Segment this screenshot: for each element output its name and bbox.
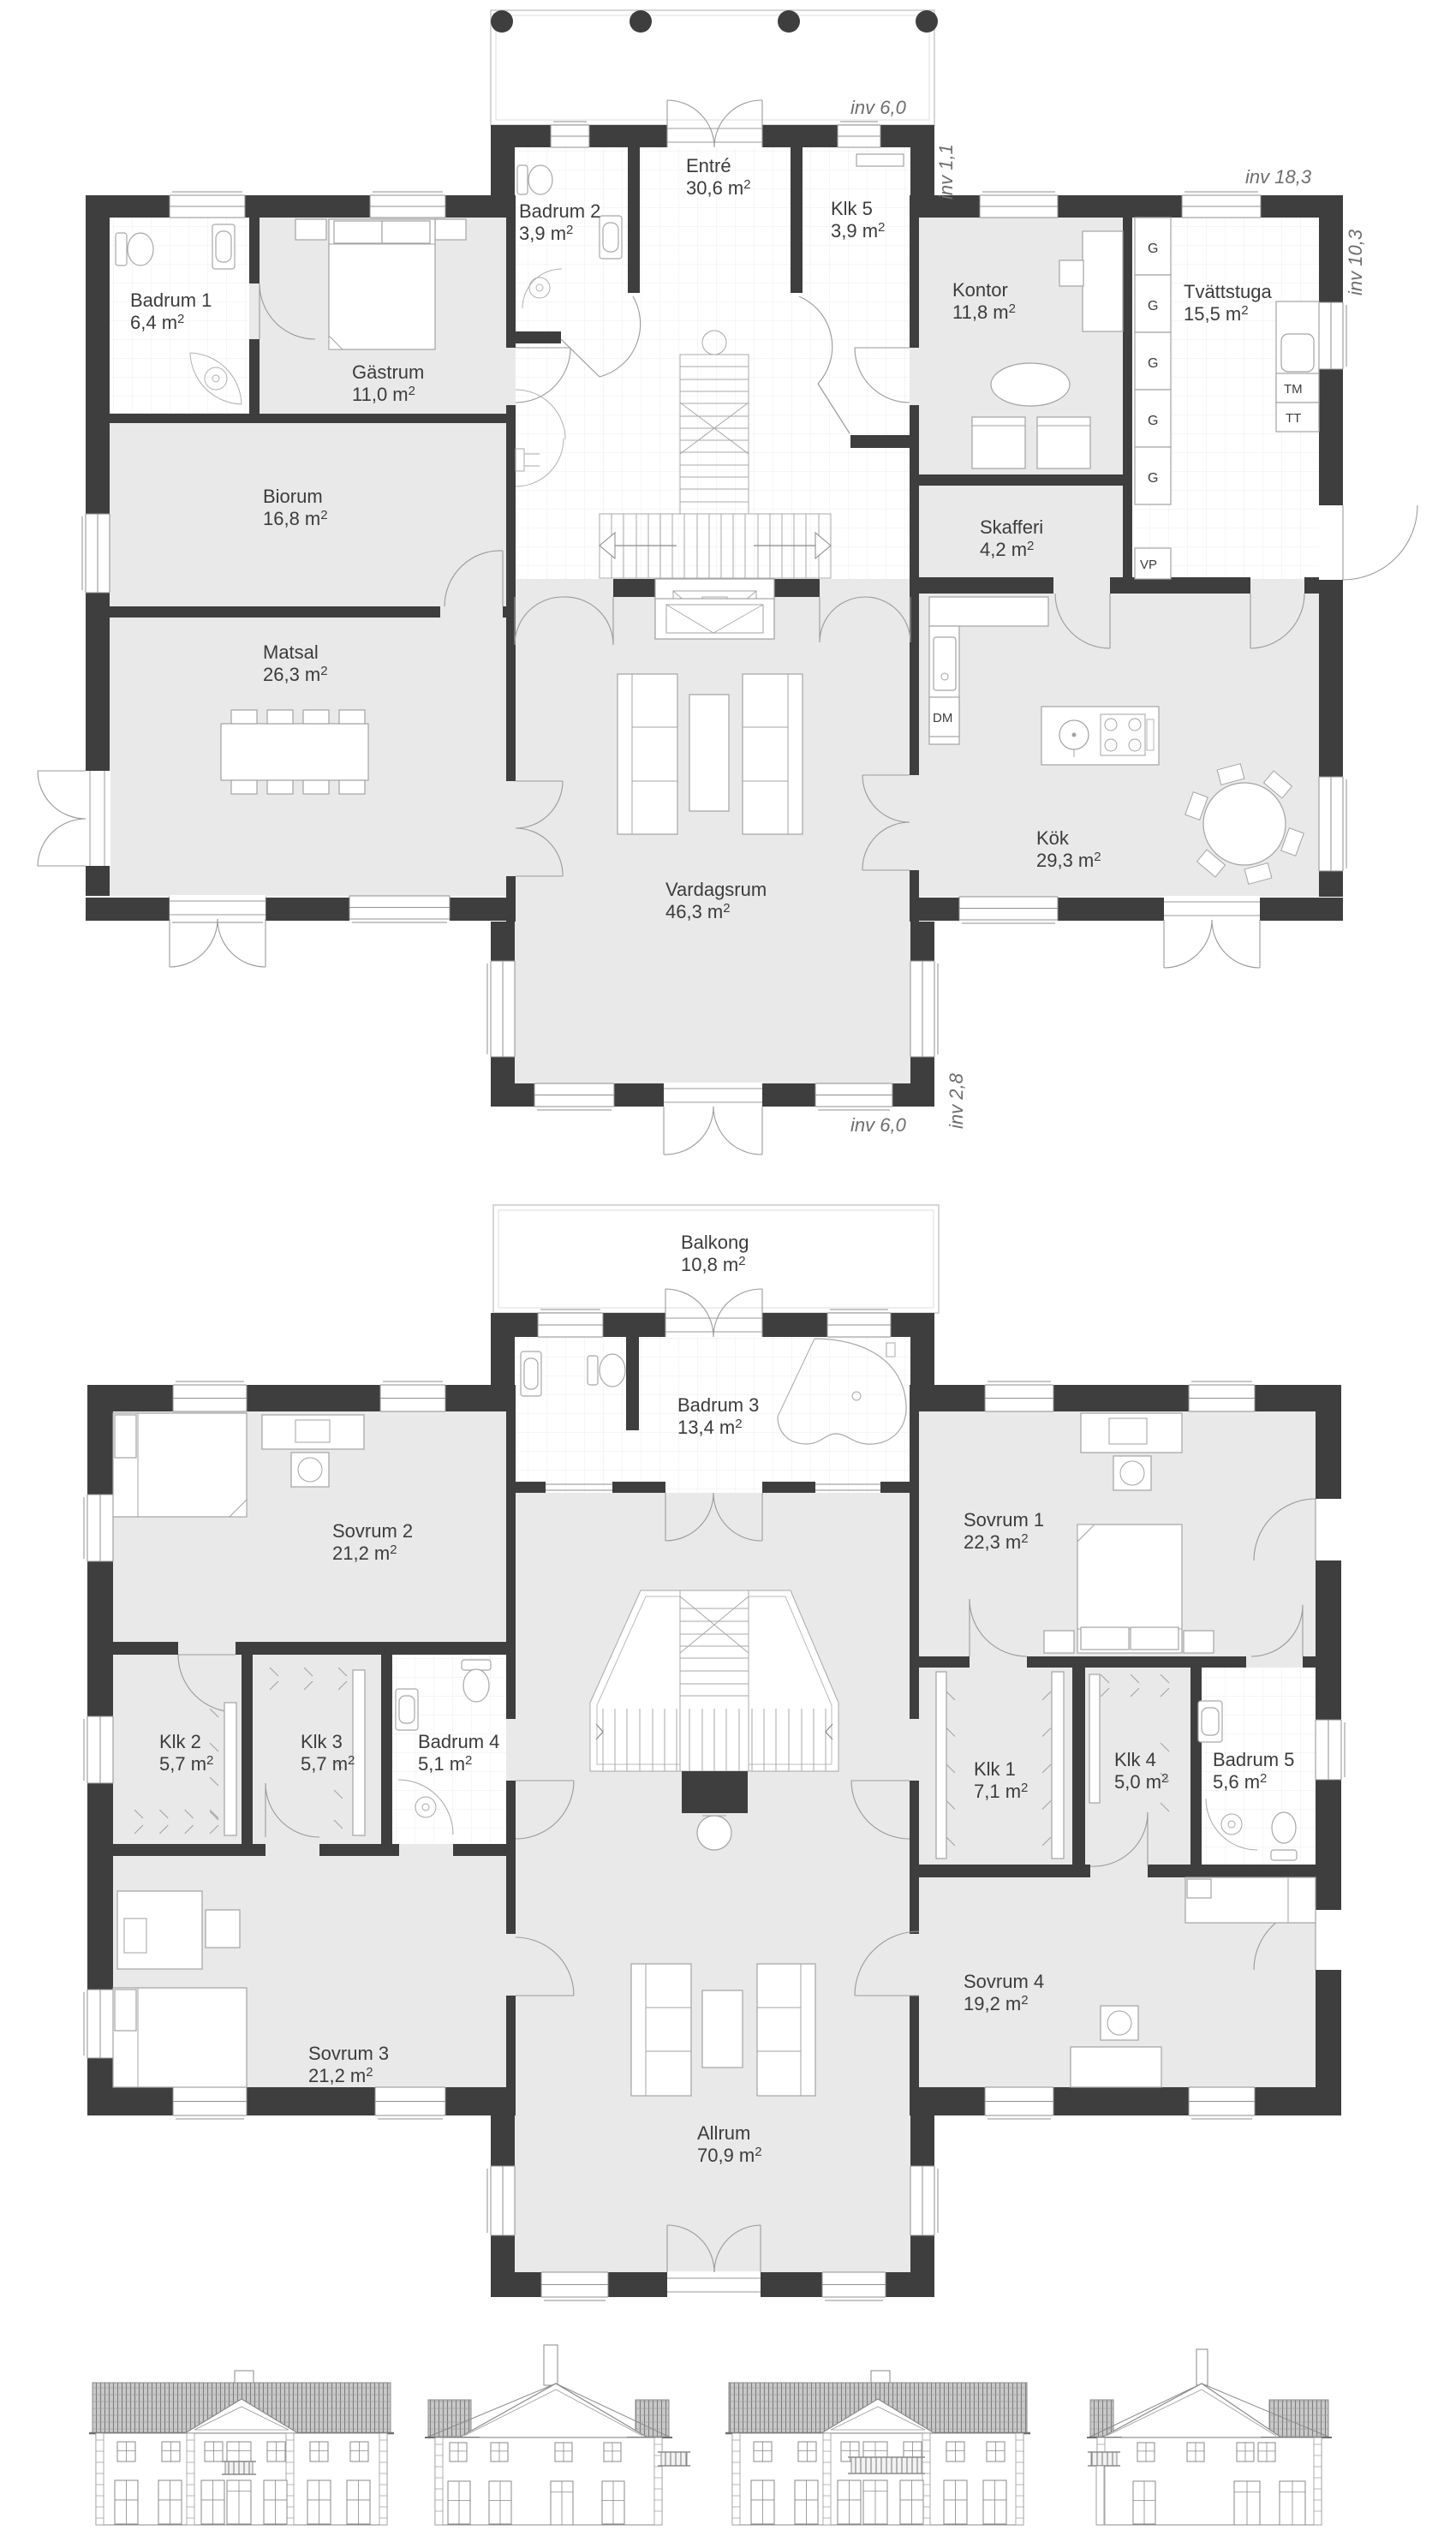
svg-text:Allrum: Allrum xyxy=(697,2122,750,2144)
svg-text:5,6 m2: 5,6 m2 xyxy=(1213,1771,1267,1793)
svg-text:G: G xyxy=(1148,356,1158,371)
svg-text:Balkong: Balkong xyxy=(681,1232,749,1253)
svg-text:21,2 m2: 21,2 m2 xyxy=(308,2065,373,2086)
svg-text:DM: DM xyxy=(933,711,952,725)
svg-text:Tvättstuga: Tvättstuga xyxy=(1184,281,1272,302)
svg-text:7,1 m2: 7,1 m2 xyxy=(974,1781,1028,1802)
svg-text:Skafferi: Skafferi xyxy=(980,516,1043,538)
svg-text:16,8 m2: 16,8 m2 xyxy=(263,508,328,529)
svg-text:5,7 m2: 5,7 m2 xyxy=(159,1753,213,1775)
svg-text:Badrum 3: Badrum 3 xyxy=(677,1394,759,1416)
svg-text:5,7 m2: 5,7 m2 xyxy=(301,1753,355,1775)
svg-text:11,8 m2: 11,8 m2 xyxy=(952,301,1016,323)
svg-text:21,2 m2: 21,2 m2 xyxy=(332,1542,397,1564)
svg-text:70,9 m2: 70,9 m2 xyxy=(697,2145,762,2166)
svg-text:4,2 m2: 4,2 m2 xyxy=(980,539,1034,560)
svg-text:G: G xyxy=(1148,242,1158,256)
svg-text:inv 6,0: inv 6,0 xyxy=(850,97,907,118)
svg-text:13,4 m2: 13,4 m2 xyxy=(677,1417,743,1438)
svg-text:Sovrum 3: Sovrum 3 xyxy=(308,2043,389,2064)
svg-text:Klk 4: Klk 4 xyxy=(1114,1749,1156,1770)
svg-text:5,0 m2: 5,0 m2 xyxy=(1114,1771,1168,1793)
svg-text:Klk 5: Klk 5 xyxy=(831,198,873,219)
svg-text:Badrum 1: Badrum 1 xyxy=(130,289,212,311)
svg-text:Klk 3: Klk 3 xyxy=(301,1731,343,1752)
svg-text:Badrum 4: Badrum 4 xyxy=(418,1731,499,1752)
svg-text:Badrum 2: Badrum 2 xyxy=(519,200,600,222)
svg-text:3,9 m2: 3,9 m2 xyxy=(831,220,885,242)
svg-text:Sovrum 1: Sovrum 1 xyxy=(964,1509,1044,1531)
svg-text:Klk 2: Klk 2 xyxy=(159,1731,201,1752)
svg-text:inv 6,0: inv 6,0 xyxy=(850,1114,907,1136)
svg-text:Kök: Kök xyxy=(1036,827,1070,849)
svg-text:Gästrum: Gästrum xyxy=(352,361,424,383)
svg-text:Matsal: Matsal xyxy=(263,641,319,663)
svg-text:26,3 m2: 26,3 m2 xyxy=(263,664,328,685)
svg-text:Kontor: Kontor xyxy=(952,279,1008,301)
svg-text:Biorum: Biorum xyxy=(263,486,323,507)
svg-text:TM: TM xyxy=(1284,382,1303,397)
svg-text:Sovrum 4: Sovrum 4 xyxy=(964,1971,1044,1992)
svg-text:G: G xyxy=(1148,471,1158,486)
svg-text:46,3 m2: 46,3 m2 xyxy=(665,901,731,922)
svg-text:19,2 m2: 19,2 m2 xyxy=(964,1993,1029,2014)
svg-text:15,5 m2: 15,5 m2 xyxy=(1184,303,1249,325)
svg-text:10,8 m2: 10,8 m2 xyxy=(681,1254,746,1275)
svg-text:Badrum 5: Badrum 5 xyxy=(1213,1749,1294,1770)
svg-text:VP: VP xyxy=(1140,558,1157,572)
svg-text:5,1 m2: 5,1 m2 xyxy=(418,1753,472,1775)
svg-text:Sovrum 2: Sovrum 2 xyxy=(332,1520,413,1542)
svg-text:11,0 m2: 11,0 m2 xyxy=(352,384,415,405)
svg-text:22,3 m2: 22,3 m2 xyxy=(964,1531,1029,1553)
svg-text:Entré: Entré xyxy=(686,155,731,176)
svg-text:6,4 m2: 6,4 m2 xyxy=(130,312,184,333)
svg-text:inv 2,8: inv 2,8 xyxy=(946,1072,967,1129)
svg-text:29,3 m2: 29,3 m2 xyxy=(1036,850,1101,871)
svg-text:3,9 m2: 3,9 m2 xyxy=(519,223,573,244)
svg-text:Klk 1: Klk 1 xyxy=(974,1758,1016,1780)
svg-text:G: G xyxy=(1148,414,1158,428)
svg-text:inv 1,1: inv 1,1 xyxy=(935,144,957,200)
svg-text:inv 10,3: inv 10,3 xyxy=(1345,229,1366,295)
svg-text:inv 18,3: inv 18,3 xyxy=(1245,166,1312,188)
svg-text:G: G xyxy=(1148,299,1158,313)
svg-text:Vardagsrum: Vardagsrum xyxy=(665,879,767,900)
svg-text:30,6 m2: 30,6 m2 xyxy=(686,177,751,199)
svg-text:TT: TT xyxy=(1286,411,1301,426)
